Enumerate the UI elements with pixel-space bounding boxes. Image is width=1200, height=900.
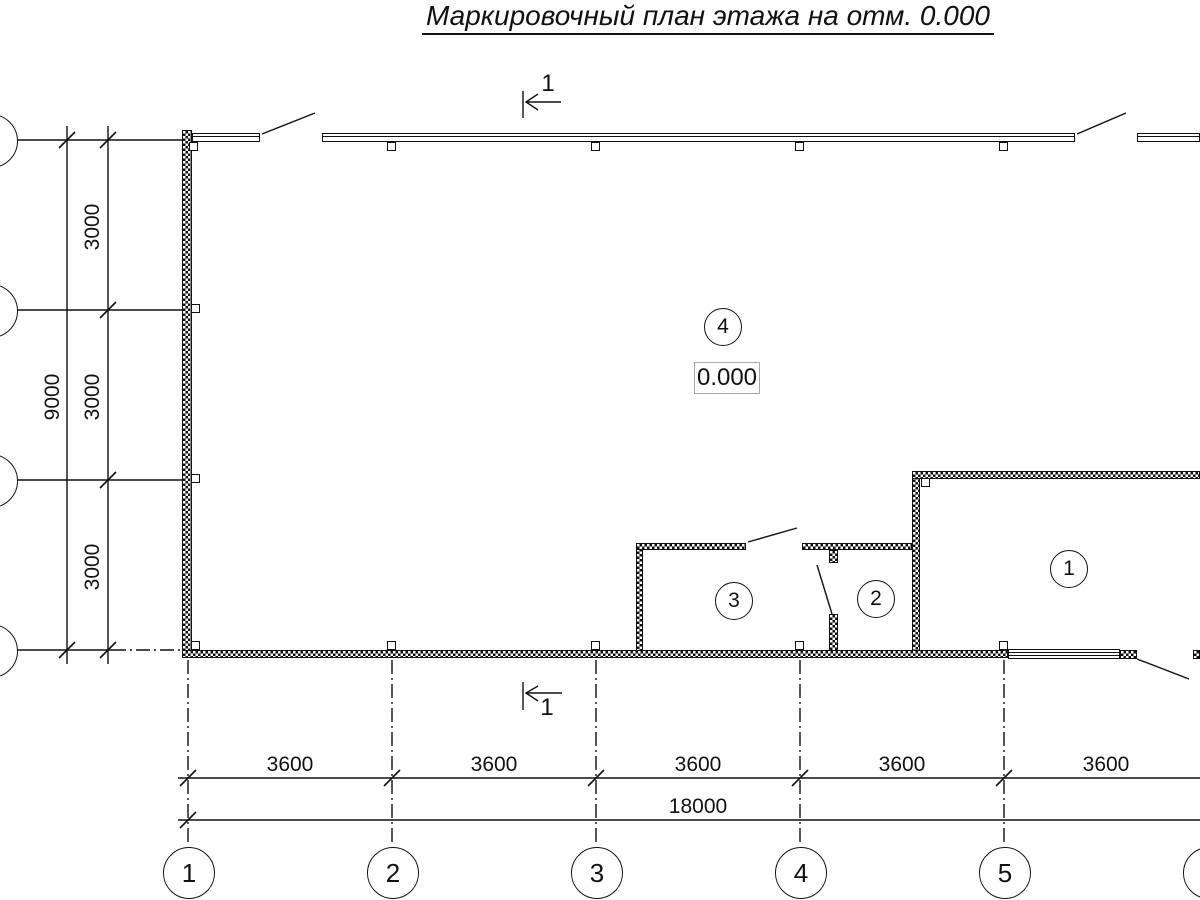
dim-vertical-3000-1: 3000 (81, 197, 105, 257)
top-glazing-segment-3 (1137, 133, 1200, 142)
dim-vertical-total-9000: 9000 (41, 367, 65, 427)
column-marker (191, 641, 200, 650)
axis-bubble-5: 5 (979, 847, 1031, 899)
dim-vertical-3000-3: 3000 (81, 537, 105, 597)
column-marker (189, 142, 198, 151)
top-glazing-segment-1 (192, 133, 260, 142)
dim-vertical-3000-2: 3000 (81, 367, 105, 427)
axis-bubble-4: 4 (775, 847, 827, 899)
room1-wall-top (912, 471, 1200, 479)
elevation-mark: 0.000 (694, 362, 760, 394)
column-marker (191, 304, 200, 313)
dim-horizontal-total-18000: 18000 (658, 795, 738, 819)
section-mark-top-label: 1 (536, 70, 560, 98)
column-marker (921, 478, 930, 487)
exterior-wall-bottom (182, 650, 1008, 658)
column-marker (999, 142, 1008, 151)
room-bubble-3: 3 (715, 582, 753, 620)
column-marker (387, 142, 396, 151)
column-marker (999, 641, 1008, 650)
dim-horizontal-3600-4: 3600 (872, 753, 932, 777)
column-marker (591, 142, 600, 151)
room-bubble-4: 4 (704, 308, 742, 346)
room2-wall-top (802, 543, 912, 550)
top-glazing-segment-2 (322, 133, 1075, 142)
dim-horizontal-3600-2: 3600 (464, 753, 524, 777)
column-marker (191, 474, 200, 483)
section-mark-bottom-label: 1 (535, 694, 559, 722)
exterior-wall-bottom-right (1193, 650, 1200, 659)
dim-horizontal-3600-5: 3600 (1076, 753, 1136, 777)
axis-bubble-3: 3 (571, 847, 623, 899)
axis-bubble-1: 1 (163, 847, 215, 899)
room3-wall-left (636, 543, 643, 651)
dim-horizontal-3600-3: 3600 (668, 753, 728, 777)
column-marker (387, 641, 396, 650)
floor-plan-canvas: Маркировочный план этажа на отм. 0.000 (0, 0, 1200, 900)
room1-wall-left (912, 471, 920, 651)
room-bubble-1: 1 (1050, 550, 1088, 588)
partition-stub-upper (829, 550, 838, 563)
dim-horizontal-3600-1: 3600 (260, 753, 320, 777)
bottom-window-band (1008, 649, 1120, 659)
axis-bubble-2: 2 (367, 847, 419, 899)
room3-wall-top (636, 543, 746, 550)
exterior-wall-bottom-pier (1120, 650, 1137, 659)
column-marker (795, 142, 804, 151)
column-marker (795, 641, 804, 650)
column-marker (591, 641, 600, 650)
partition-stub-lower (829, 614, 838, 651)
room-bubble-2: 2 (857, 580, 895, 618)
exterior-wall-left (182, 130, 192, 658)
